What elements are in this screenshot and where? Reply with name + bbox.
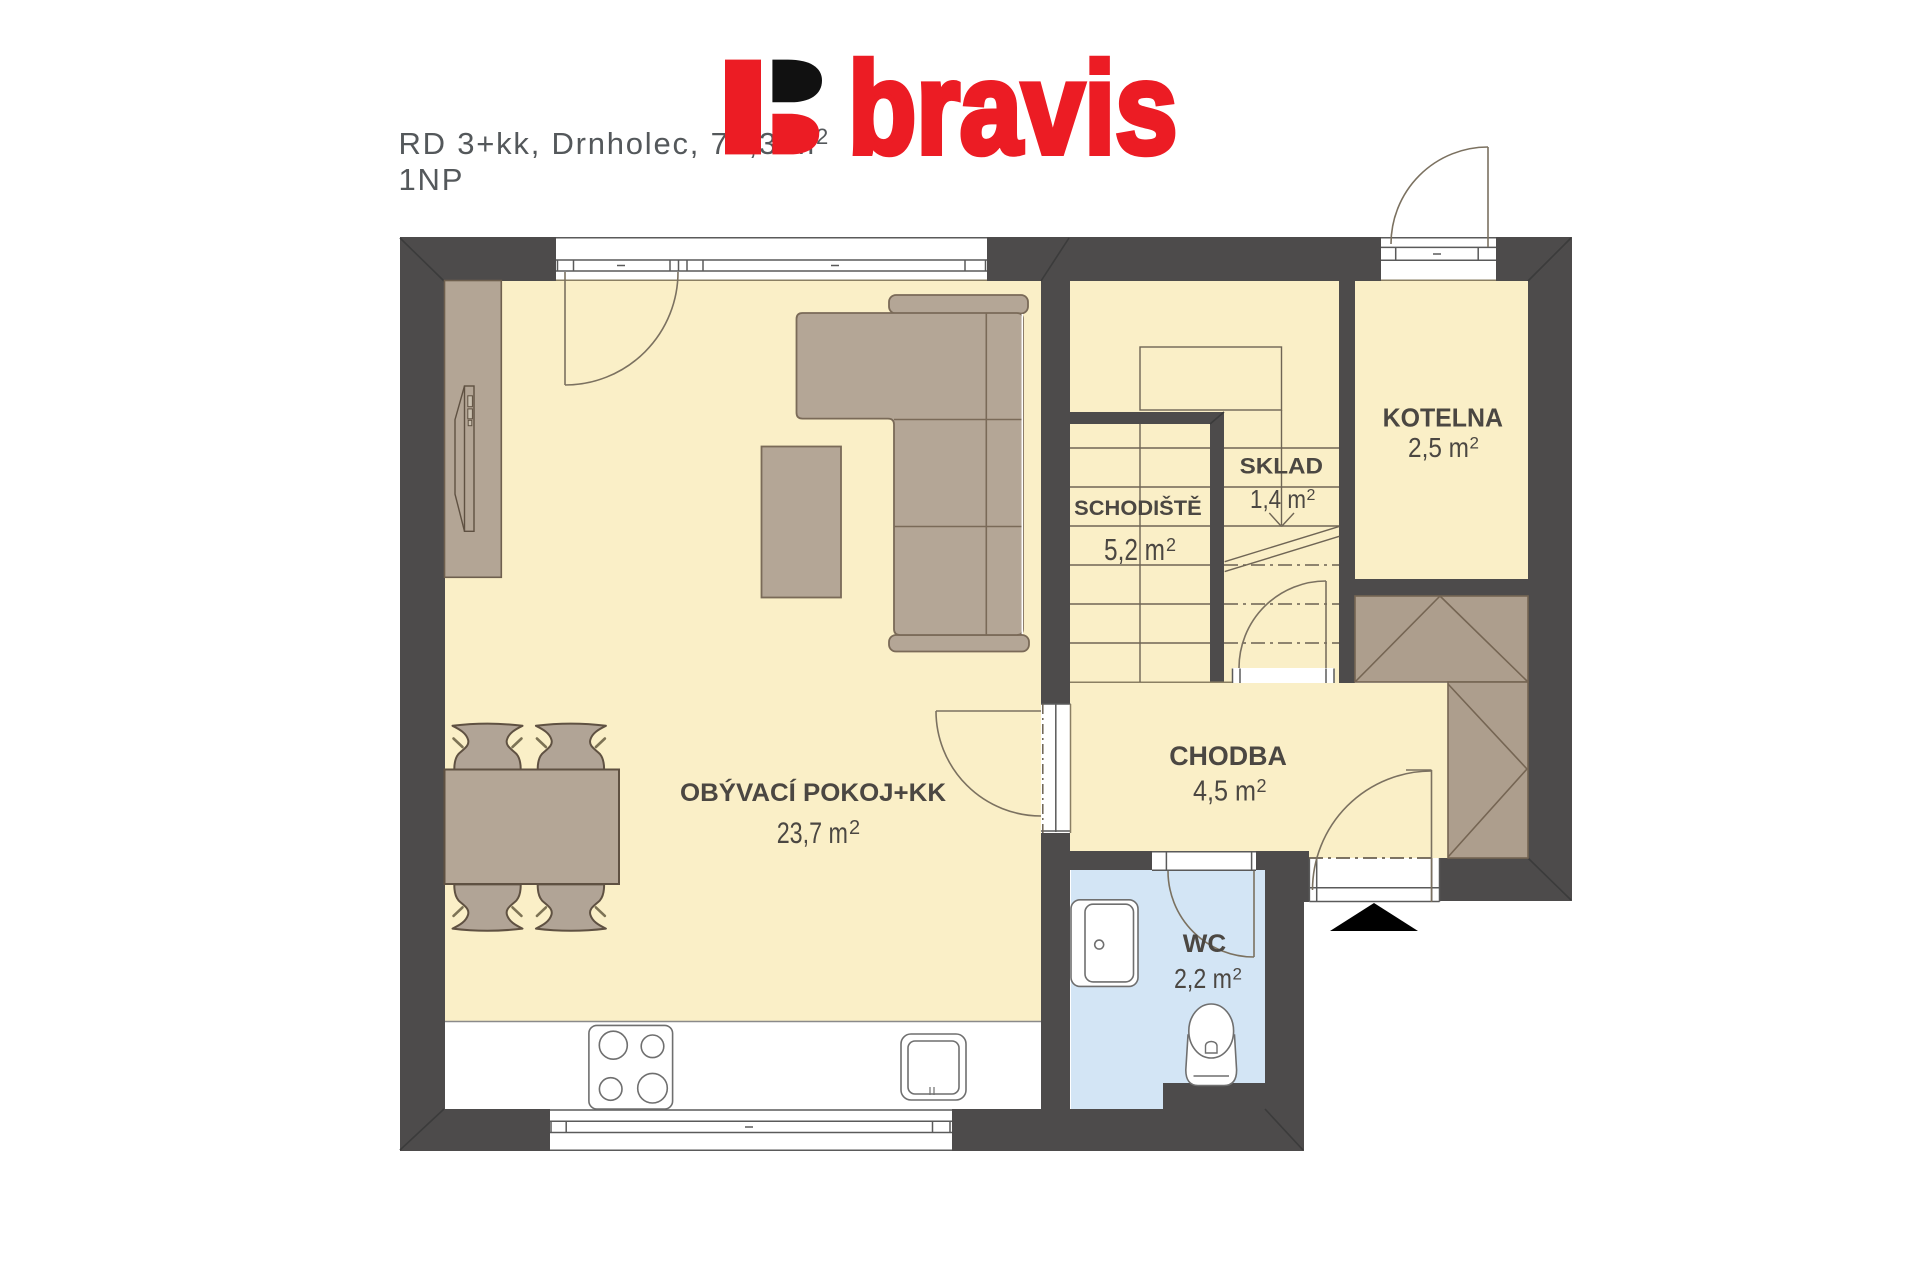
svg-text:RD 3+kk, Drnholec, 74,3 m2: RD 3+kk, Drnholec, 74,3 m2 (399, 124, 831, 161)
svg-text:WC: WC (1183, 930, 1226, 958)
svg-text:1,4 m: 1,4 m (1250, 484, 1306, 514)
svg-text:2,5 m: 2,5 m (1408, 432, 1469, 463)
svg-text:2: 2 (849, 817, 860, 839)
svg-text:bravis: bravis (848, 35, 1177, 181)
svg-text:23,7 m: 23,7 m (777, 817, 848, 850)
svg-text:SKLAD: SKLAD (1240, 454, 1323, 479)
svg-text:CHODBA: CHODBA (1169, 741, 1287, 771)
svg-text:OBÝVACÍ POKOJ+KK: OBÝVACÍ POKOJ+KK (680, 777, 946, 807)
svg-text:KOTELNA: KOTELNA (1383, 403, 1504, 433)
svg-text:2: 2 (1307, 487, 1316, 504)
svg-text:2,2 m: 2,2 m (1174, 963, 1232, 994)
svg-text:2: 2 (1257, 776, 1267, 796)
svg-text:2: 2 (1470, 434, 1479, 453)
svg-text:5,2 m: 5,2 m (1104, 532, 1165, 567)
svg-text:4,5 m: 4,5 m (1193, 776, 1256, 808)
svg-text:SCHODIŠTĚ: SCHODIŠTĚ (1074, 496, 1202, 520)
svg-text:1NP: 1NP (399, 162, 465, 197)
svg-text:2: 2 (1166, 535, 1176, 555)
svg-text:2: 2 (1233, 965, 1242, 984)
